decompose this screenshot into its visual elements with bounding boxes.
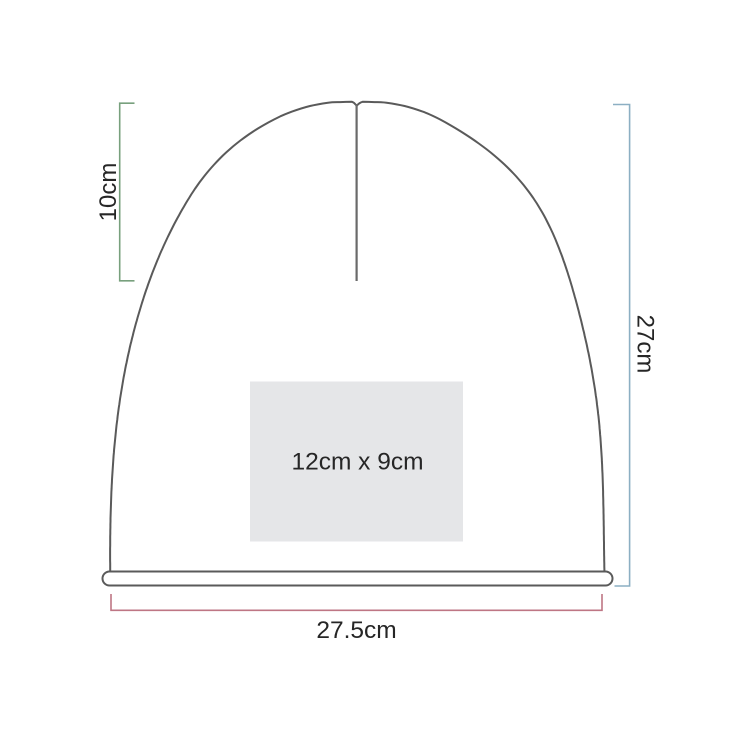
svg-text:27cm: 27cm (632, 315, 659, 374)
svg-text:27.5cm: 27.5cm (316, 617, 396, 644)
svg-text:12cm x 9cm: 12cm x 9cm (291, 449, 423, 476)
svg-text:10cm: 10cm (95, 163, 122, 222)
